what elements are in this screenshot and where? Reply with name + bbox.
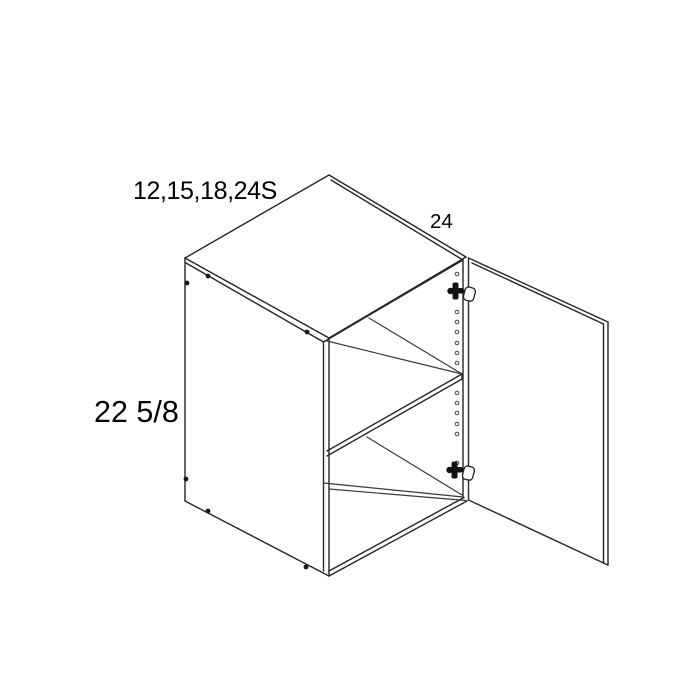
cabinet-isometric-drawing: 12,15,18,24S 24 22 5/8 <box>0 0 700 700</box>
cabinet-interior <box>324 318 467 501</box>
open-door-panel <box>469 258 609 565</box>
cabinet-spec-canvas: 12,15,18,24S 24 22 5/8 <box>0 0 700 700</box>
shelf-pin-holes <box>455 272 459 465</box>
height-label: 22 5/8 <box>94 395 179 429</box>
shelf <box>327 374 462 456</box>
width-options-label: 12,15,18,24S <box>133 177 277 205</box>
left-side-panel <box>184 258 329 576</box>
screw-dots <box>184 274 310 570</box>
depth-label: 24 <box>430 210 453 233</box>
hinge-bottom-icon <box>446 462 475 481</box>
hinge-top-icon <box>447 283 476 302</box>
